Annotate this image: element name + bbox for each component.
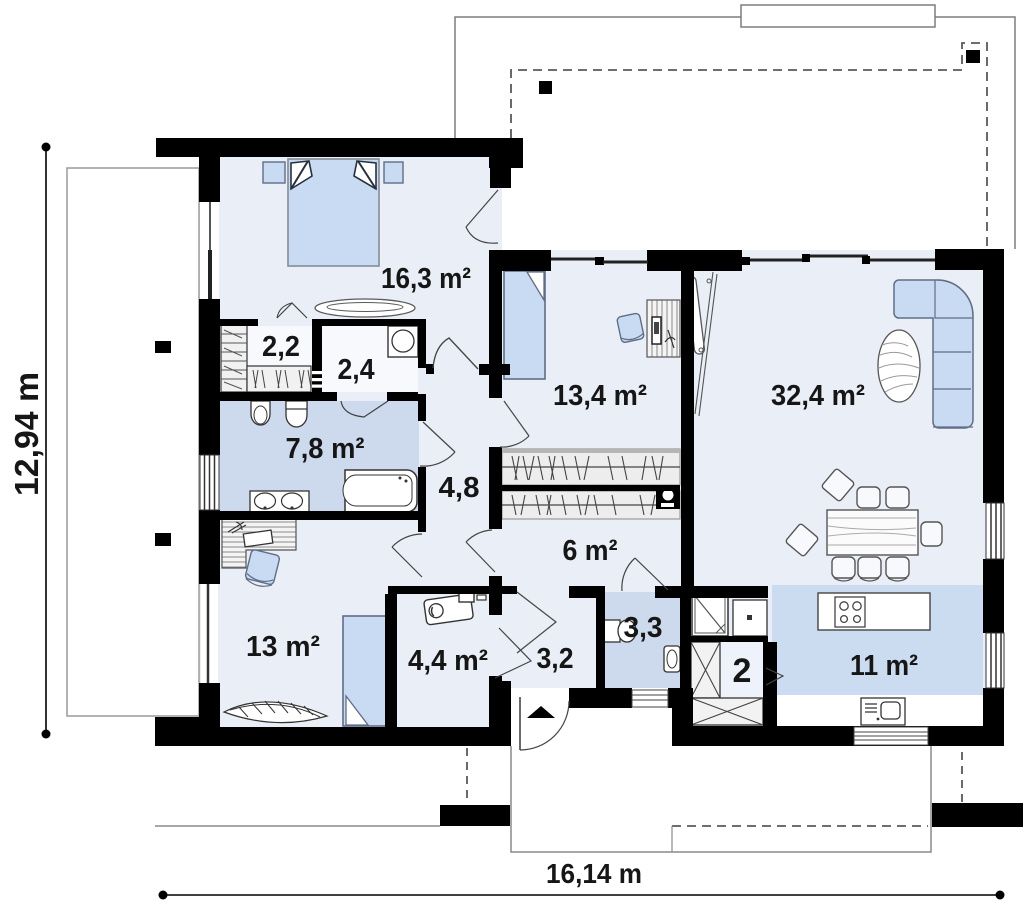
svg-text:4,8: 4,8: [439, 472, 480, 504]
svg-text:2,2: 2,2: [262, 331, 300, 363]
svg-text:7,8 m²: 7,8 m²: [286, 433, 365, 465]
svg-text:3,2: 3,2: [537, 643, 574, 675]
svg-text:2,4: 2,4: [338, 354, 375, 386]
svg-text:16,14 m: 16,14 m: [546, 858, 642, 889]
svg-text:3,3: 3,3: [624, 612, 663, 644]
svg-text:12,94 m: 12,94 m: [8, 372, 45, 496]
svg-text:2: 2: [733, 652, 752, 690]
svg-text:16,3 m²: 16,3 m²: [381, 263, 471, 295]
svg-text:4,4 m²: 4,4 m²: [408, 645, 488, 677]
svg-text:13 m²: 13 m²: [246, 631, 320, 663]
svg-text:32,4 m²: 32,4 m²: [771, 380, 865, 412]
svg-text:13,4 m²: 13,4 m²: [553, 380, 647, 412]
svg-text:11 m²: 11 m²: [850, 650, 918, 682]
svg-text:6 m²: 6 m²: [563, 535, 618, 567]
